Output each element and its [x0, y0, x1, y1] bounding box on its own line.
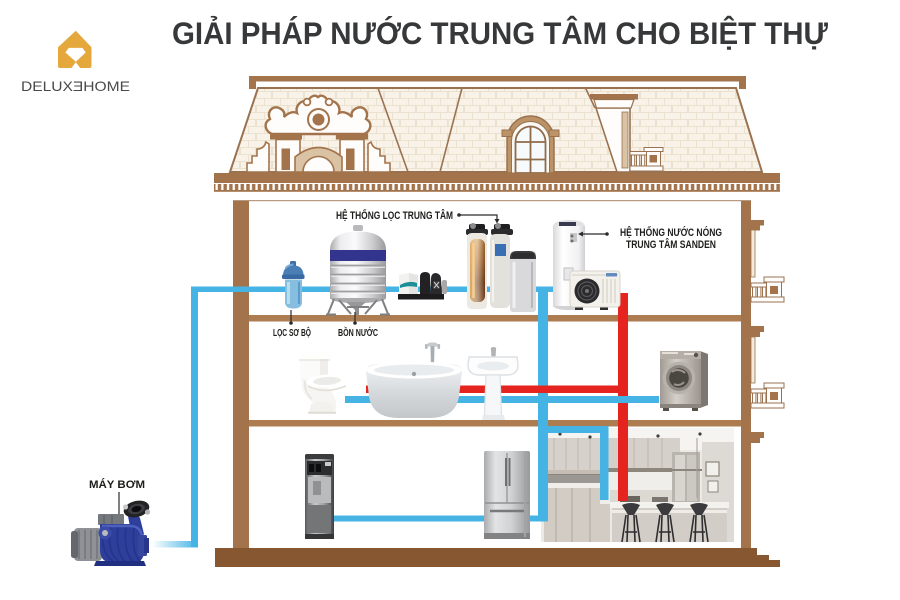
svg-text:HỆ THỐNG NƯỚC NÓNG: HỆ THỐNG NƯỚC NÓNG: [620, 225, 722, 239]
svg-text:HỆ THỐNG LỌC TRUNG TÂM: HỆ THỐNG LỌC TRUNG TÂM: [336, 208, 453, 222]
svg-text:BỒN NƯỚC: BỒN NƯỚC: [338, 326, 378, 339]
svg-text:TRUNG TÂM SANDEN: TRUNG TÂM SANDEN: [626, 238, 716, 251]
svg-text:GIẢI PHÁP NƯỚC TRUNG TÂM CHO B: GIẢI PHÁP NƯỚC TRUNG TÂM CHO BIỆT THỰ: [172, 15, 829, 51]
svg-text:LỌC SƠ BỘ: LỌC SƠ BỘ: [273, 326, 311, 339]
svg-text:MÁY BƠM: MÁY BƠM: [89, 478, 145, 491]
svg-text:DELUXƎHOME: DELUXƎHOME: [21, 78, 130, 94]
